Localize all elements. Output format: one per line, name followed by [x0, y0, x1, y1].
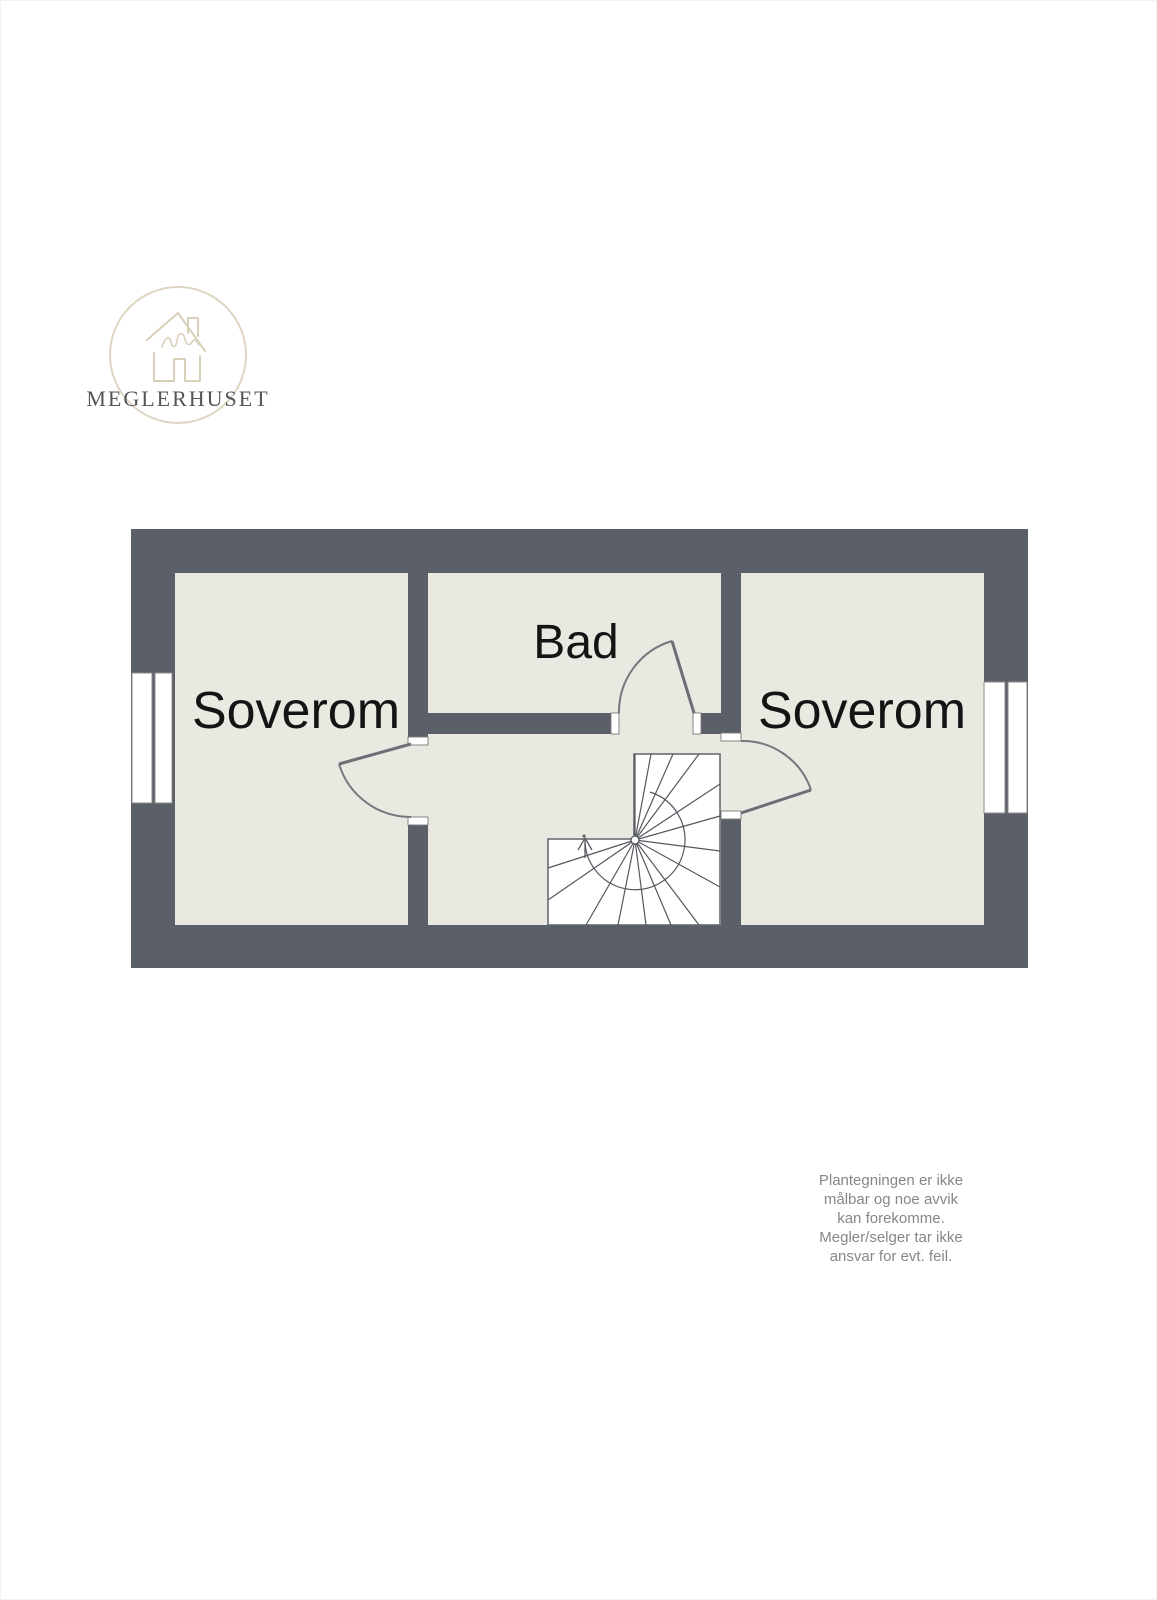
stair-center-post — [631, 836, 639, 844]
room-label-bedroom-left: Soverom — [192, 682, 400, 740]
disclaimer-line: Megler/selger tar ikke — [781, 1228, 1001, 1247]
disclaimer-line: Plantegningen er ikke — [781, 1171, 1001, 1190]
floorplan: Soverom Bad Soverom — [101, 501, 1061, 1001]
door-opening-bathroom — [619, 713, 693, 734]
brand-name: MEGLERHUSET — [78, 386, 278, 412]
window-right — [984, 682, 1027, 813]
disclaimer-line: ansvar for evt. feil. — [781, 1247, 1001, 1266]
room-label-bathroom: Bad — [533, 616, 618, 669]
logo-house-icon — [147, 313, 205, 381]
disclaimer: Plantegningen er ikke målbar og noe avvi… — [781, 1171, 1001, 1266]
window-left — [132, 673, 172, 803]
room-label-bedroom-right: Soverom — [758, 682, 966, 740]
disclaimer-line: målbar og noe avvik — [781, 1190, 1001, 1209]
page: MEGLERHUSET — [0, 0, 1157, 1600]
disclaimer-line: kan forekomme. — [781, 1209, 1001, 1228]
room-bedroom-left — [175, 573, 408, 925]
door-opening-left — [408, 745, 428, 817]
door-opening-right — [721, 741, 741, 811]
